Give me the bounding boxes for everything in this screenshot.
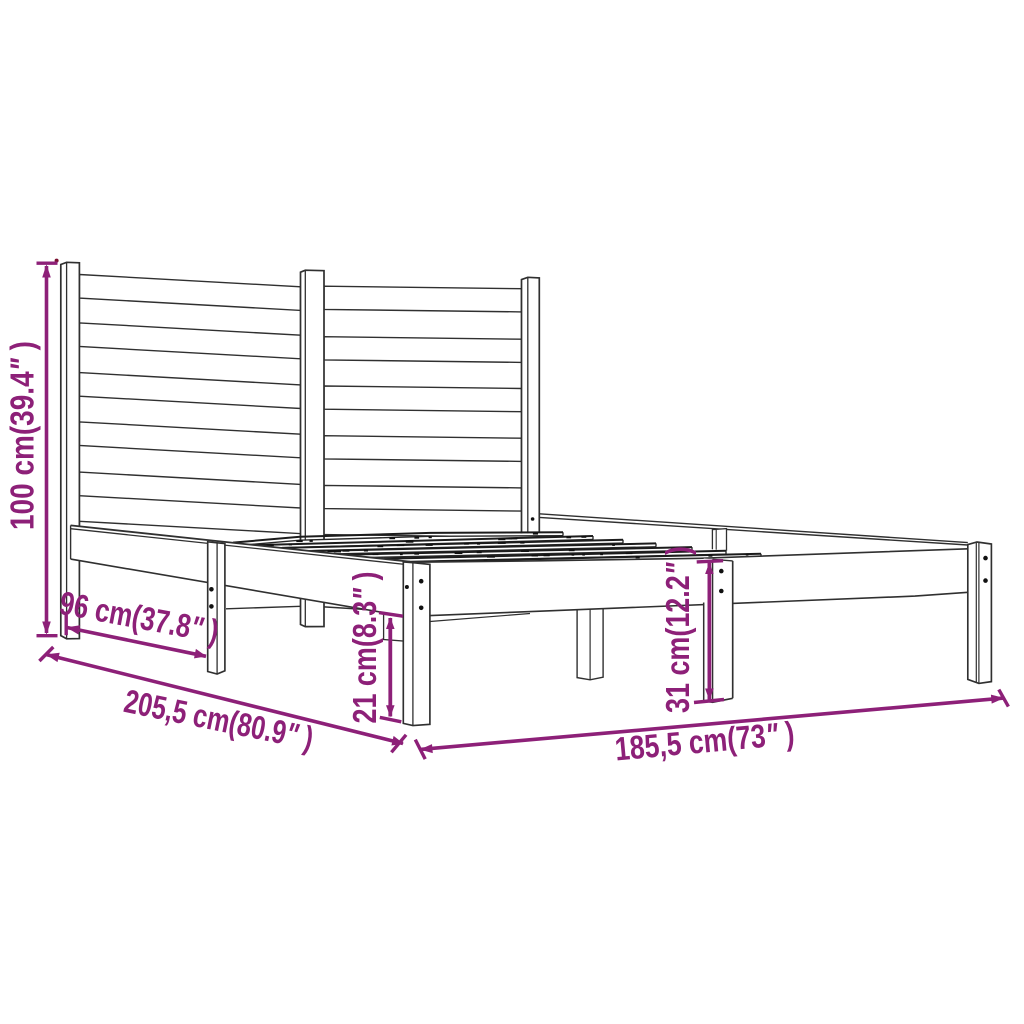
svg-text:31 cm(12.2" ): 31 cm(12.2" ): [659, 546, 696, 713]
svg-text:21 cm(8.3" ): 21 cm(8.3" ): [346, 572, 383, 724]
svg-text:100 cm(39.4" ): 100 cm(39.4" ): [4, 341, 41, 530]
